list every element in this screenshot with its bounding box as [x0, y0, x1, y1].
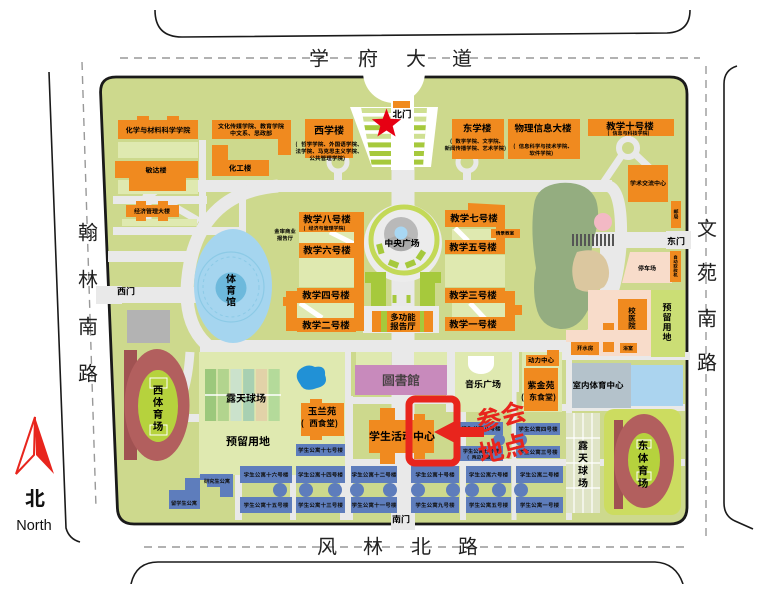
- svg-text:North: North: [16, 518, 51, 534]
